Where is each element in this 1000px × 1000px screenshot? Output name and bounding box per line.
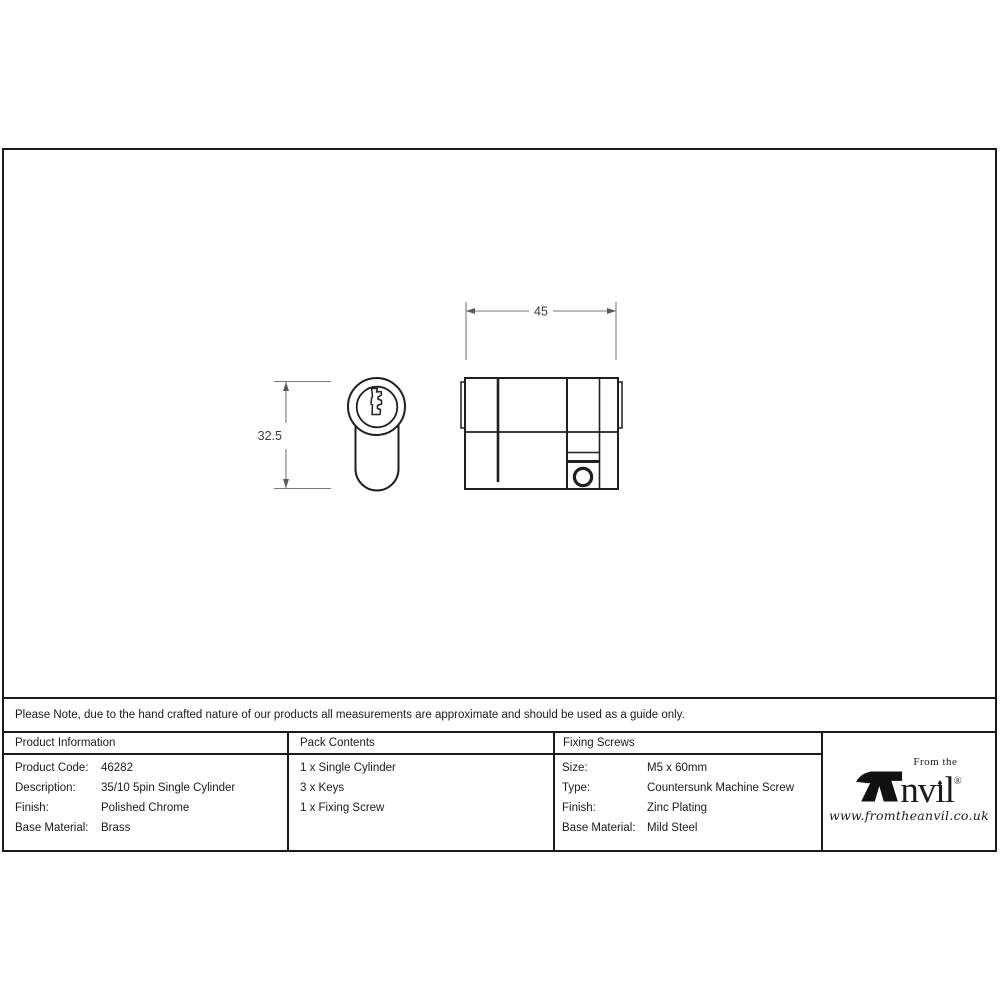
brand-letter-l: l — [945, 770, 954, 811]
row-label: Finish: — [562, 798, 647, 818]
dim-325-label: 32.5 — [258, 429, 282, 443]
dim-45-arrow-left — [466, 308, 475, 314]
cylinder-side-view — [461, 378, 622, 489]
dimension-width-45: 45 — [466, 302, 616, 360]
table-row: Description:35/10 5pin Single Cylinder — [15, 778, 287, 798]
row-label: Size: — [562, 758, 647, 778]
dim-45-label: 45 — [534, 305, 548, 319]
dimension-height-32-5: 32.5 — [258, 382, 331, 489]
row-label: Description: — [15, 778, 101, 798]
brand-letters-nv: nv — [900, 770, 935, 811]
table-row: Base Material:Mild Steel — [562, 818, 821, 838]
logo-website-url: www.fromtheanvil.co.uk — [829, 808, 989, 823]
row-value: M5 x 60mm — [647, 762, 707, 774]
table-row: Base Material:Brass — [15, 818, 287, 838]
logo-brand-text: nv♦ıl® — [900, 767, 961, 805]
product-information-column: Product Information Product Code:46282 D… — [4, 733, 289, 850]
pack-contents-header: Pack Contents — [289, 733, 553, 755]
side-view-body — [465, 378, 618, 489]
diamond-tittle-icon: ♦ — [937, 769, 942, 798]
brand-letter-i: ♦ı — [935, 776, 944, 805]
row-value: Countersunk Machine Screw — [647, 782, 794, 794]
table-row: Finish:Polished Chrome — [15, 798, 287, 818]
brand-logo-cell: From the nv♦ıl® www.fromtheanvil.co.uk — [823, 733, 995, 850]
dim-325-arrow-bottom — [283, 479, 289, 488]
product-information-header: Product Information — [4, 733, 287, 755]
row-value: Mild Steel — [647, 822, 698, 834]
dim-325-arrow-top — [283, 382, 289, 391]
row-label: Product Code: — [15, 758, 101, 778]
list-item: 3 x Keys — [300, 778, 553, 798]
row-label: Base Material: — [15, 818, 101, 838]
row-value: 46282 — [101, 762, 133, 774]
side-view-fixing-hole — [574, 468, 591, 485]
cylinder-front-view — [348, 378, 405, 491]
list-item: 1 x Single Cylinder — [300, 758, 553, 778]
measurement-note-text: Please Note, due to the hand crafted nat… — [4, 709, 685, 721]
from-the-anvil-logo: From the nv♦ıl® www.fromtheanvil.co.uk — [829, 757, 989, 823]
table-row: Type:Countersunk Machine Screw — [562, 778, 821, 798]
row-value: Brass — [101, 822, 130, 834]
list-item: 1 x Fixing Screw — [300, 798, 553, 818]
pack-contents-column: Pack Contents 1 x Single Cylinder 3 x Ke… — [289, 733, 555, 850]
row-value: Zinc Plating — [647, 802, 707, 814]
row-label: Base Material: — [562, 818, 647, 838]
row-value: Polished Chrome — [101, 802, 189, 814]
registered-trademark-icon: ® — [954, 776, 962, 787]
anvil-icon — [856, 768, 903, 805]
table-row: Product Code:46282 — [15, 758, 287, 778]
row-label: Finish: — [15, 798, 101, 818]
fixing-screws-column: Fixing Screws Size:M5 x 60mm Type:Counte… — [555, 733, 823, 850]
row-label: Type: — [562, 778, 647, 798]
spec-sheet-page: 45 32.5 Please Note, due to the hand cra… — [0, 0, 1000, 1000]
dim-45-arrow-right — [607, 308, 616, 314]
keyway-icon — [371, 389, 382, 415]
fixing-screws-header: Fixing Screws — [555, 733, 821, 755]
measurement-note-row: Please Note, due to the hand crafted nat… — [2, 697, 997, 733]
table-row: Finish:Zinc Plating — [562, 798, 821, 818]
table-row: Size:M5 x 60mm — [562, 758, 821, 778]
row-value: 35/10 5pin Single Cylinder — [101, 782, 235, 794]
spec-table: Product Information Product Code:46282 D… — [2, 731, 997, 852]
